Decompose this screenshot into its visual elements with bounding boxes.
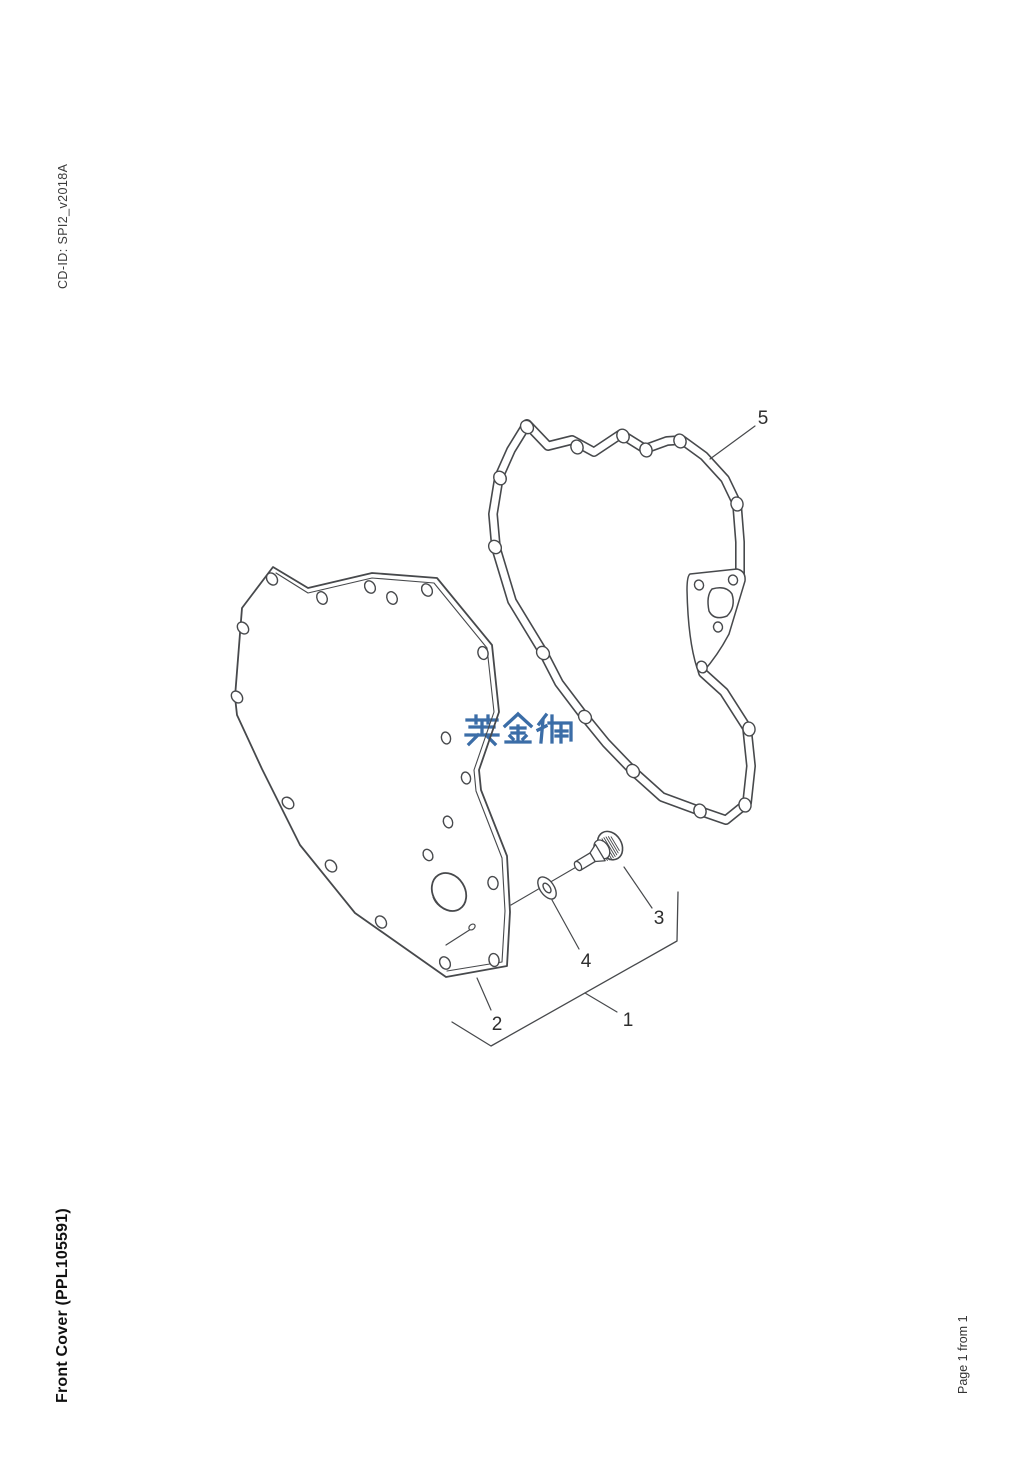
callout-2-label: 2 xyxy=(492,1014,503,1035)
callout-3-label: 3 xyxy=(654,908,665,929)
leader-line-1 xyxy=(585,993,617,1012)
cover-thickness-line xyxy=(276,573,505,971)
leader-line-2 xyxy=(477,978,491,1010)
callout-1-label: 1 xyxy=(623,1010,634,1031)
watermark-glyphs xyxy=(466,714,571,744)
catalog-page: CD-ID: SPI2_v2018A Front Cover (PPL10559… xyxy=(0,0,1033,1461)
cover-outer-outline xyxy=(235,567,510,977)
washer-part xyxy=(534,874,560,903)
bolt-part xyxy=(567,827,627,880)
cover-bolt-holes xyxy=(229,571,500,971)
diagram-lines xyxy=(229,418,756,1046)
exploded-parts-drawing: 1 2 3 4 5 xyxy=(0,0,1033,1461)
leader-line-5 xyxy=(710,426,755,459)
gasket-web-cutout xyxy=(708,588,733,618)
callout-5-label: 5 xyxy=(758,408,769,429)
dowel-pin xyxy=(446,923,476,945)
cover-large-opening xyxy=(425,867,473,918)
leader-line-3 xyxy=(624,867,652,908)
leader-line-4 xyxy=(552,900,579,949)
gasket-part xyxy=(486,418,756,820)
callout-4-label: 4 xyxy=(581,951,592,972)
front-cover-part xyxy=(229,567,510,977)
